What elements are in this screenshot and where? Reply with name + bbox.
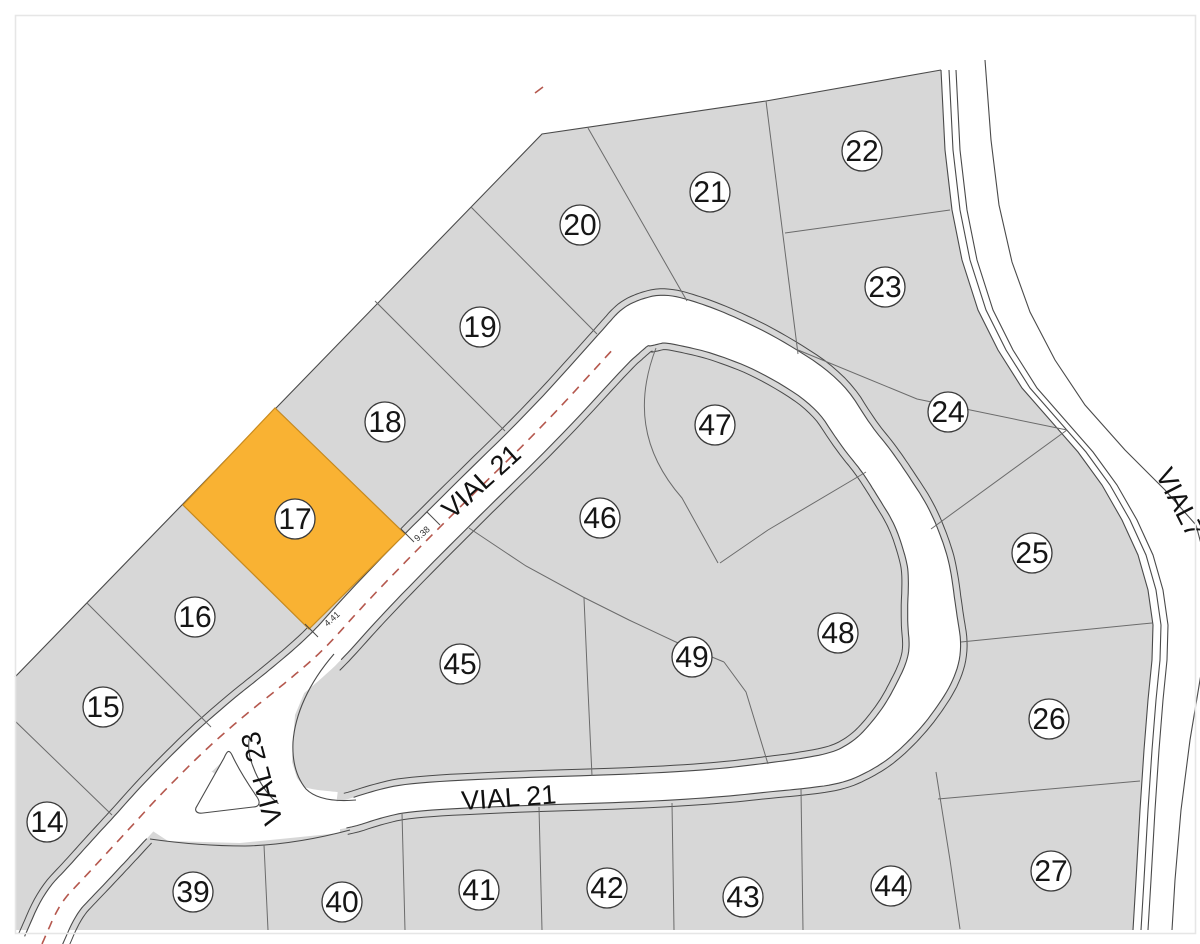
svg-text:47: 47 [698,409,731,442]
svg-text:49: 49 [675,641,708,674]
svg-text:25: 25 [1015,537,1048,570]
svg-text:39: 39 [176,876,209,909]
svg-text:19: 19 [463,311,496,344]
svg-text:26: 26 [1032,703,1065,736]
svg-text:18: 18 [368,406,401,439]
svg-text:44: 44 [874,870,907,903]
svg-text:23: 23 [868,271,901,304]
svg-text:41: 41 [462,874,495,907]
svg-text:20: 20 [563,209,596,242]
svg-text:42: 42 [590,872,623,905]
svg-text:48: 48 [821,617,854,650]
svg-text:40: 40 [325,886,358,919]
svg-text:46: 46 [583,502,616,535]
svg-text:17: 17 [278,503,311,536]
svg-text:15: 15 [86,691,119,724]
svg-text:21: 21 [693,176,726,209]
svg-text:43: 43 [726,881,759,914]
svg-text:22: 22 [845,135,878,168]
svg-text:16: 16 [178,601,211,634]
svg-text:27: 27 [1034,855,1067,888]
svg-text:45: 45 [443,648,476,681]
svg-text:14: 14 [30,806,63,839]
svg-text:24: 24 [931,396,964,429]
